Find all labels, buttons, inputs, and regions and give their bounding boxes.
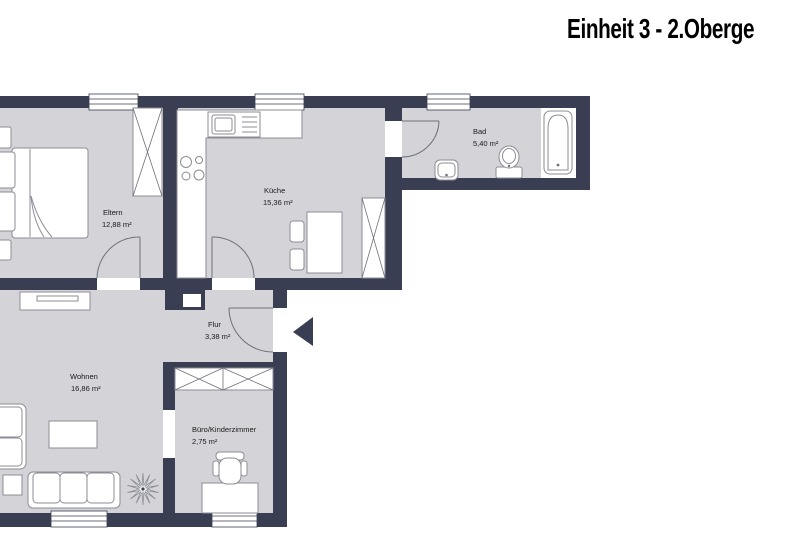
wardrobe-kueche xyxy=(362,198,385,278)
floorplan-drawing: Eltern 12,88 m² Küche 15,36 m² Bad 5,40 … xyxy=(0,0,794,555)
wall-bad-right xyxy=(576,96,590,190)
opening-wohnen-buero xyxy=(163,410,175,458)
wall-buero-left-lower xyxy=(163,458,175,513)
side-table xyxy=(3,475,22,495)
room-area-flur: 3,38 m² xyxy=(205,332,231,341)
entrance-arrow-icon xyxy=(293,317,313,346)
door-opening-entrance xyxy=(273,308,287,352)
wardrobe-eltern xyxy=(133,108,162,196)
room-area-bad: 5,40 m² xyxy=(473,139,499,148)
bed xyxy=(12,148,88,238)
chair xyxy=(290,221,304,242)
window-wohnen xyxy=(51,511,107,527)
room-area-eltern: 12,88 m² xyxy=(102,220,132,229)
wardrobe-buero xyxy=(175,368,273,390)
coffee-table xyxy=(49,421,97,448)
room-label-flur: Flur xyxy=(208,320,221,329)
armchair xyxy=(0,404,26,469)
room-label-bad: Bad xyxy=(473,127,486,136)
room-label-buero: Büro/Kinderzimmer xyxy=(192,425,257,434)
pillow xyxy=(0,192,15,231)
room-label-kueche: Küche xyxy=(264,186,285,195)
door-opening-kueche xyxy=(212,278,255,290)
door-opening-eltern xyxy=(97,278,140,290)
sofa xyxy=(28,472,120,508)
bathtub-drain xyxy=(557,164,560,167)
wall-bad-bottom xyxy=(385,178,590,190)
nightstand xyxy=(0,240,11,260)
wall-flur-right-stub xyxy=(273,290,287,308)
dining-table xyxy=(307,212,342,273)
shaft-inner xyxy=(183,294,201,307)
wall-upper-bottom xyxy=(0,278,402,290)
room-area-wohnen: 16,86 m² xyxy=(71,384,101,393)
nightstand xyxy=(0,127,11,148)
floorplan-page: Einheit 3 - 2.Oberge xyxy=(0,0,794,555)
room-label-eltern: Eltern xyxy=(103,208,123,217)
window-bad xyxy=(427,94,470,110)
window-eltern xyxy=(89,94,138,110)
room-area-buero: 2,75 m² xyxy=(192,437,218,446)
window-kueche xyxy=(255,94,304,110)
door-opening-bad xyxy=(385,121,402,157)
wall-buero-left-upper xyxy=(163,371,175,410)
washbasin xyxy=(435,160,458,180)
sink-bowl-inner xyxy=(215,118,232,131)
chair xyxy=(290,249,304,270)
wall-eltern-kueche xyxy=(163,108,178,278)
wall-buero-right xyxy=(273,352,287,527)
room-area-kueche: 15,36 m² xyxy=(263,198,293,207)
desk xyxy=(202,483,258,513)
pillow xyxy=(0,152,15,188)
room-label-wohnen: Wohnen xyxy=(70,372,98,381)
